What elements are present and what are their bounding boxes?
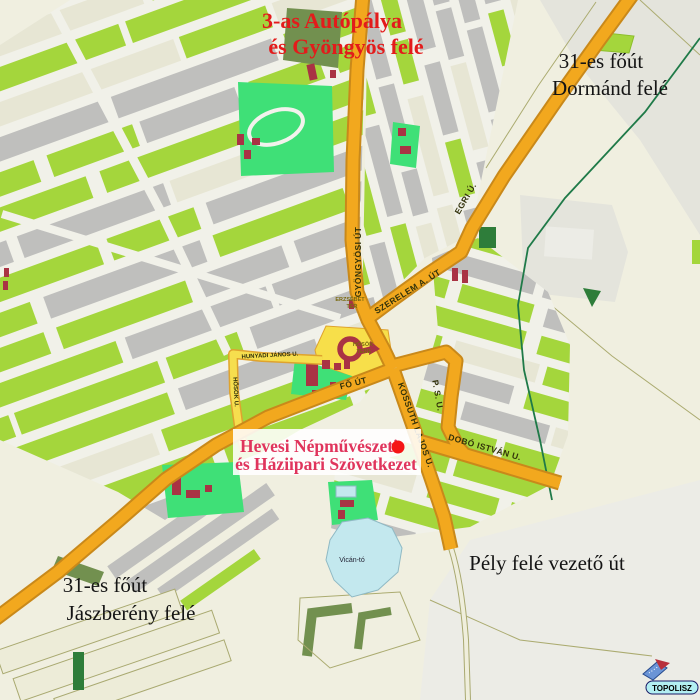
stadium-park <box>237 82 334 176</box>
map-viewport: GYÖNGYÖSI ÚT EGRI Ú. SZERELEM A. ÚT FŐ Ú… <box>0 0 700 700</box>
label-autopalya-line2: és Gyöngyös felé <box>268 34 423 59</box>
label-jaszbereny-line2: Jászberény felé <box>67 601 196 625</box>
forest-strip-bottom-left <box>73 652 84 690</box>
poi-marker-dot[interactable] <box>392 441 405 454</box>
square-label-hosok-tere-1: HŐSÖK <box>353 341 373 348</box>
label-autopalya-line1: 3-as Autópálya <box>262 8 402 33</box>
poi-label-line2: és Háziipari Szövetkezet <box>235 454 417 474</box>
square-label-hosok-tere-2: TERE <box>357 349 372 355</box>
park-east-of-stadium <box>390 122 420 168</box>
green-strip-east-edge <box>692 240 700 264</box>
label-jaszbereny-line1: 31-es főút <box>63 573 148 597</box>
forest-block-egri <box>479 227 496 248</box>
square-label-erzsebet-1: ERZSÉBET <box>335 295 365 303</box>
poi-label-line1: Hevesi Népművészeti <box>240 436 398 456</box>
label-dormand-line1: 31-es főút <box>559 49 644 73</box>
label-pely: Pély felé vezető út <box>469 551 625 575</box>
street-label-gyongyosi: GYÖNGYÖSI ÚT <box>352 226 363 297</box>
topolisz-text: TOPOLISZ <box>652 684 692 693</box>
square-label-erzsebet-2: TÉR <box>347 302 358 310</box>
poi-callout: Hevesi Népművészeti és Háziipari Szövetk… <box>233 429 421 475</box>
lake-label: Vicán-tó <box>339 557 365 564</box>
map-canvas: GYÖNGYÖSI ÚT EGRI Ú. SZERELEM A. ÚT FŐ Ú… <box>0 0 700 700</box>
park-by-lake <box>328 480 378 525</box>
label-dormand-line2: Dormánd felé <box>552 76 668 100</box>
